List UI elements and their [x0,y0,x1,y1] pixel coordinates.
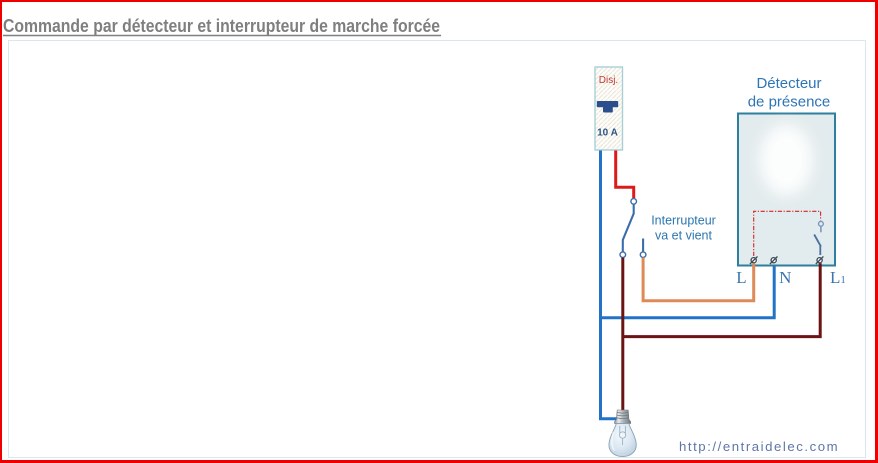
svg-text:va et vient: va et vient [655,229,713,243]
svg-text:Commande par détecteur et inte: Commande par détecteur et interrupteur d… [3,15,440,36]
svg-text:Disj.: Disj. [599,75,618,86]
svg-text:Détecteur: Détecteur [756,75,821,92]
svg-text:N: N [779,268,791,287]
svg-text:L: L [736,268,746,287]
svg-text:de présence: de présence [748,94,831,111]
svg-text:http://entraidelec.com: http://entraidelec.com [679,439,839,454]
svg-text:10 A: 10 A [597,128,618,139]
svg-text:Interrupteur: Interrupteur [651,214,716,228]
